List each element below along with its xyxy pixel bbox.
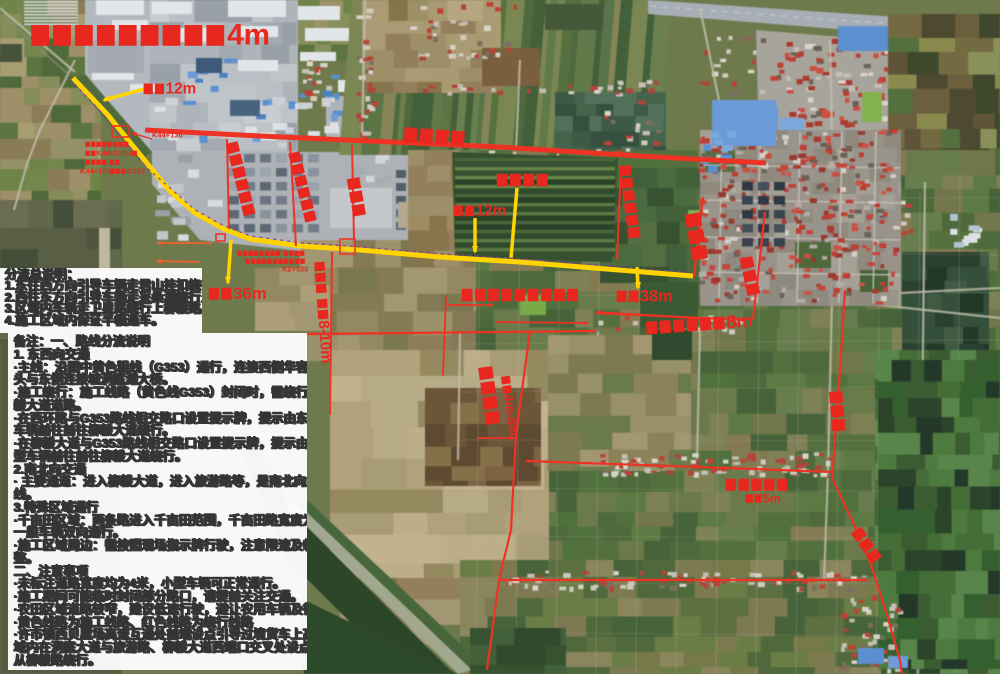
svg-text:8m: 8m [726, 309, 754, 332]
svg-text:12m: 12m [476, 203, 507, 220]
svg-text:38m: 38m [640, 287, 673, 305]
svg-text:5m: 5m [763, 491, 781, 505]
svg-text:K2+520: K2+520 [282, 265, 308, 274]
svg-text:8-10m: 8-10m [315, 320, 334, 364]
svg-text:12m: 12m [166, 81, 197, 98]
svg-text:4m: 4m [227, 19, 270, 52]
svg-text:K44+130: K44+130 [152, 131, 183, 140]
svg-text:G353: G353 [127, 167, 145, 176]
svg-text:K44+100m: K44+100m [96, 149, 134, 158]
svg-text:36m: 36m [233, 284, 267, 303]
svg-text:K44+100: K44+100 [80, 167, 111, 176]
svg-text:4m-8m: 4m-8m [501, 394, 522, 437]
